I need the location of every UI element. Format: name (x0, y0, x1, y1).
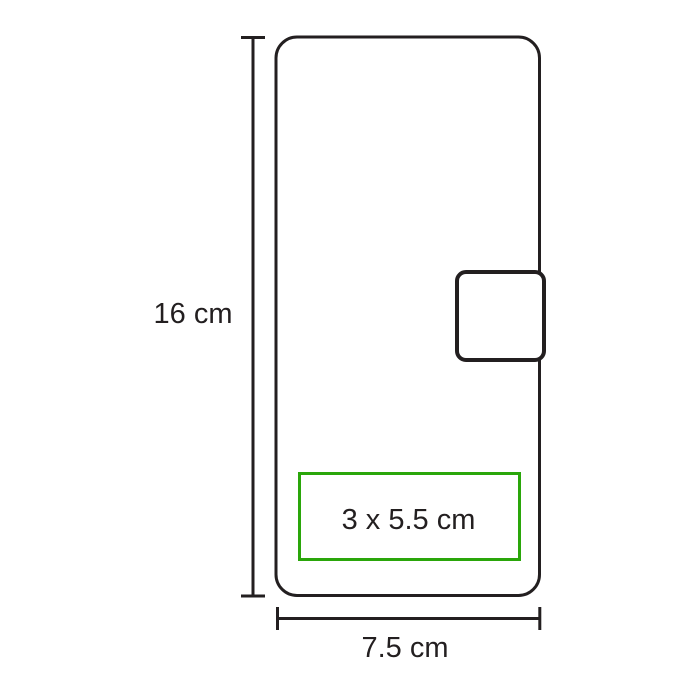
svg-text:7.5 cm: 7.5 cm (361, 632, 448, 664)
svg-text:3 x 5.5 cm: 3 x 5.5 cm (342, 504, 476, 536)
svg-text:16 cm: 16 cm (154, 298, 233, 330)
